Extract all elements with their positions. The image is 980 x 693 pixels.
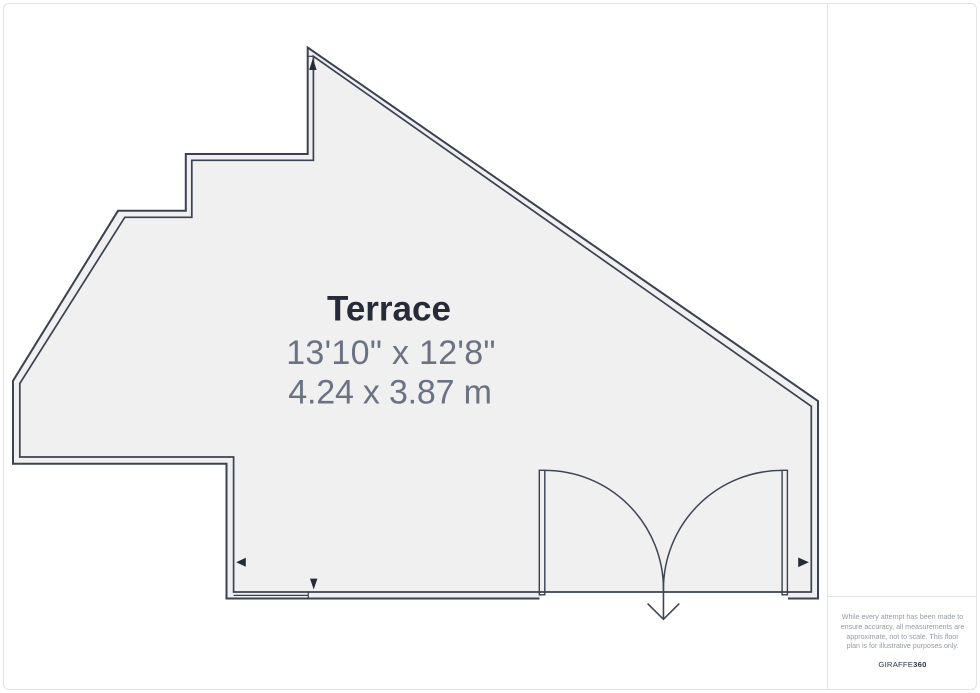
- svg-text:Terrace: Terrace: [327, 290, 451, 329]
- svg-text:13'10" x 12'8": 13'10" x 12'8": [286, 334, 496, 372]
- svg-text:4.24 x 3.87 m: 4.24 x 3.87 m: [288, 374, 491, 412]
